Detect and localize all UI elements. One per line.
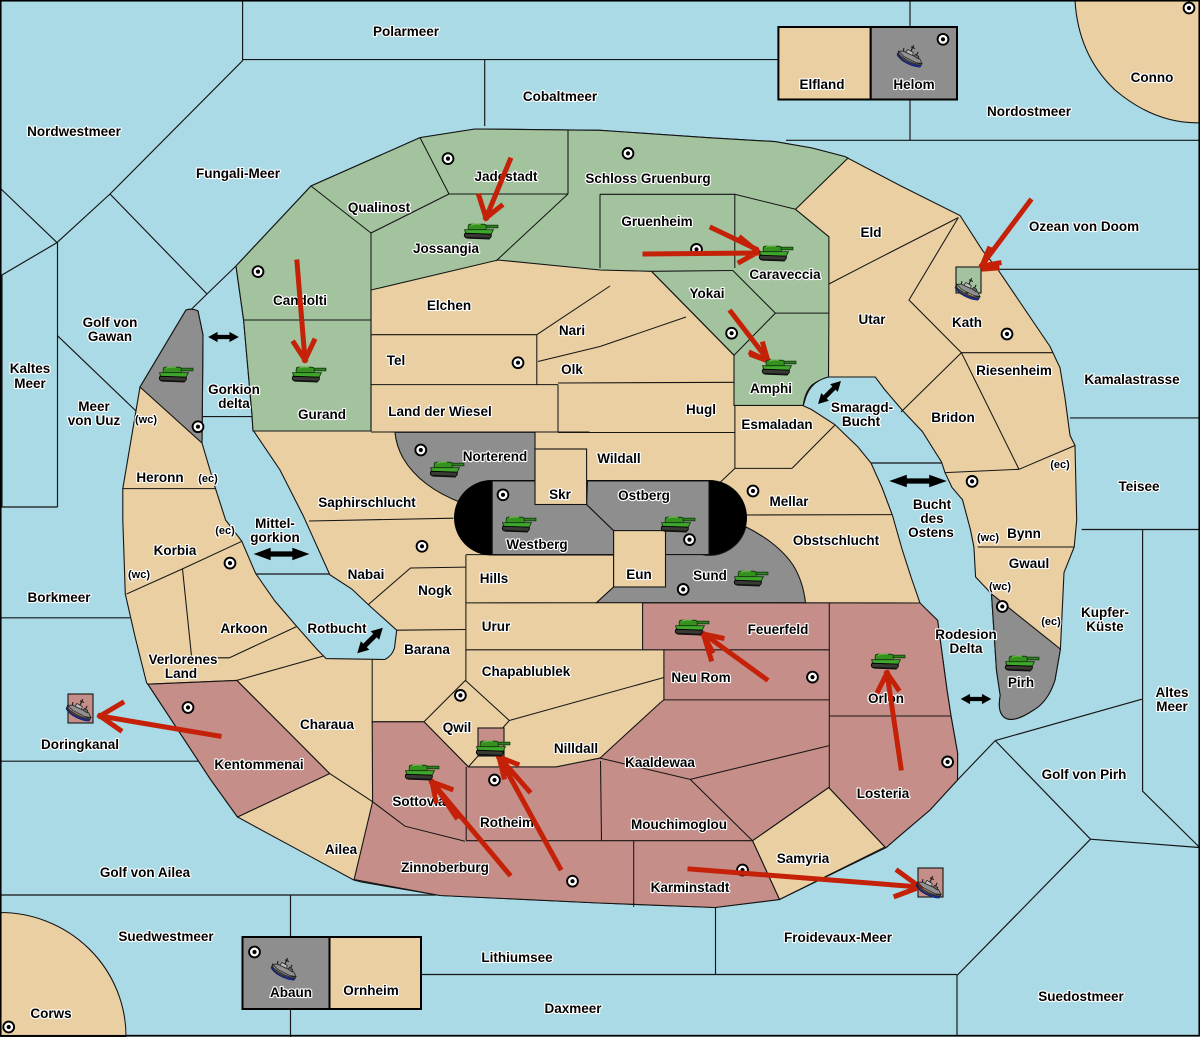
svg-text:Ostberg: Ostberg: [618, 488, 670, 503]
svg-text:Meer: Meer: [78, 399, 110, 414]
svg-text:von Uuz: von Uuz: [68, 413, 121, 428]
svg-text:(wc): (wc): [989, 581, 1011, 593]
svg-text:Zinnoberburg: Zinnoberburg: [401, 860, 489, 875]
svg-text:Amphi: Amphi: [750, 381, 792, 396]
svg-text:Suedwestmeer: Suedwestmeer: [118, 929, 214, 944]
svg-text:Golf von Pirh: Golf von Pirh: [1042, 767, 1127, 782]
svg-text:Rotheim: Rotheim: [480, 815, 534, 830]
svg-text:Qwil: Qwil: [443, 720, 472, 735]
svg-text:Saphirschlucht: Saphirschlucht: [318, 495, 416, 510]
svg-text:Feuerfeld: Feuerfeld: [748, 622, 809, 637]
svg-text:Abaun: Abaun: [270, 985, 312, 1000]
svg-text:Jossangia: Jossangia: [413, 241, 480, 256]
svg-text:Corws: Corws: [30, 1006, 71, 1021]
svg-text:gorkion: gorkion: [250, 530, 300, 545]
svg-text:Elfland: Elfland: [799, 77, 844, 92]
svg-text:Teisee: Teisee: [1118, 479, 1160, 494]
svg-text:Delta: Delta: [949, 641, 983, 656]
svg-text:Korbia: Korbia: [154, 543, 197, 558]
svg-text:Bucht: Bucht: [913, 497, 952, 512]
svg-text:Heronn: Heronn: [136, 470, 183, 485]
svg-text:Esmaladan: Esmaladan: [741, 417, 812, 432]
svg-text:Ornheim: Ornheim: [343, 983, 399, 998]
svg-text:Kamalastrasse: Kamalastrasse: [1084, 372, 1180, 387]
svg-text:Helom: Helom: [893, 77, 934, 92]
svg-text:Orlon: Orlon: [868, 691, 904, 706]
svg-text:Qualinost: Qualinost: [348, 200, 411, 215]
svg-text:Eun: Eun: [626, 567, 652, 582]
svg-text:Bridon: Bridon: [931, 410, 975, 425]
svg-text:Kentommenai: Kentommenai: [214, 757, 303, 772]
svg-text:Kupfer-: Kupfer-: [1081, 605, 1129, 620]
svg-text:Eld: Eld: [860, 225, 881, 240]
svg-text:Caraveccia: Caraveccia: [749, 267, 821, 282]
svg-text:Westberg: Westberg: [506, 537, 567, 552]
svg-text:Daxmeer: Daxmeer: [544, 1001, 602, 1016]
svg-text:Doringkanal: Doringkanal: [41, 737, 119, 752]
svg-text:Gwaul: Gwaul: [1009, 556, 1050, 571]
svg-text:Samyria: Samyria: [777, 851, 830, 866]
svg-text:Land: Land: [165, 666, 197, 681]
svg-text:(ec): (ec): [215, 525, 235, 537]
svg-text:Yokai: Yokai: [689, 286, 724, 301]
svg-text:Sund: Sund: [693, 568, 727, 583]
svg-text:Lithiumsee: Lithiumsee: [481, 950, 553, 965]
svg-text:Rotbucht: Rotbucht: [307, 621, 367, 636]
svg-text:Neu Rom: Neu Rom: [671, 670, 730, 685]
svg-text:Kaltes: Kaltes: [10, 361, 51, 376]
svg-text:Kaaldewaa: Kaaldewaa: [625, 755, 695, 770]
svg-text:Mellar: Mellar: [769, 494, 809, 509]
svg-text:Nordwestmeer: Nordwestmeer: [27, 124, 122, 139]
svg-text:Tel: Tel: [387, 353, 406, 368]
svg-text:Rodesion: Rodesion: [935, 627, 997, 642]
svg-text:Norterend: Norterend: [463, 449, 528, 464]
svg-text:Hills: Hills: [480, 571, 509, 586]
svg-text:Losteria: Losteria: [857, 786, 910, 801]
svg-text:Gorkion: Gorkion: [208, 382, 260, 397]
svg-text:Küste: Küste: [1086, 619, 1124, 634]
svg-text:Polarmeer: Polarmeer: [373, 24, 440, 39]
svg-text:Bucht: Bucht: [842, 414, 881, 429]
svg-text:(wc): (wc): [128, 569, 150, 581]
svg-text:Nordostmeer: Nordostmeer: [987, 104, 1072, 119]
svg-text:Bynn: Bynn: [1007, 526, 1041, 541]
svg-text:Charaua: Charaua: [300, 717, 355, 732]
svg-text:Obstschlucht: Obstschlucht: [793, 533, 880, 548]
svg-text:Wildall: Wildall: [597, 451, 640, 466]
svg-text:Olk: Olk: [561, 362, 583, 377]
svg-text:Mittel-: Mittel-: [255, 516, 295, 531]
svg-text:Froidevaux-Meer: Froidevaux-Meer: [784, 930, 893, 945]
svg-text:Cobaltmeer: Cobaltmeer: [523, 89, 598, 104]
svg-text:Suedostmeer: Suedostmeer: [1038, 989, 1124, 1004]
svg-text:Gruenheim: Gruenheim: [621, 214, 692, 229]
svg-text:Gurand: Gurand: [298, 407, 346, 422]
svg-text:Verlorenes: Verlorenes: [148, 652, 217, 667]
svg-text:Schloss Gruenburg: Schloss Gruenburg: [585, 171, 710, 186]
svg-text:Meer: Meer: [1156, 699, 1188, 714]
svg-text:Nogk: Nogk: [418, 583, 452, 598]
svg-text:Borkmeer: Borkmeer: [27, 590, 91, 605]
svg-text:Kath: Kath: [952, 315, 982, 330]
svg-text:Utar: Utar: [858, 312, 886, 327]
svg-text:Mouchimoglou: Mouchimoglou: [631, 817, 727, 832]
svg-text:(ec): (ec): [1041, 616, 1061, 628]
svg-text:Altes: Altes: [1155, 685, 1188, 700]
svg-text:Hugl: Hugl: [686, 402, 716, 417]
svg-text:(wc): (wc): [977, 532, 999, 544]
svg-text:Ailea: Ailea: [325, 842, 358, 857]
svg-text:des: des: [920, 511, 943, 526]
svg-text:Fungali-Meer: Fungali-Meer: [196, 166, 281, 181]
svg-text:Conno: Conno: [1131, 70, 1174, 85]
svg-text:Elchen: Elchen: [427, 298, 471, 313]
svg-text:Skr: Skr: [549, 487, 572, 502]
svg-text:Karminstadt: Karminstadt: [651, 880, 730, 895]
svg-text:Urur: Urur: [482, 619, 511, 634]
svg-text:Nilldall: Nilldall: [554, 741, 598, 756]
svg-text:Riesenheim: Riesenheim: [976, 363, 1052, 378]
svg-text:Barana: Barana: [404, 642, 450, 657]
svg-text:Nari: Nari: [559, 323, 585, 338]
svg-text:Gawan: Gawan: [88, 329, 132, 344]
svg-text:Smaragd-: Smaragd-: [831, 400, 893, 415]
svg-text:Golf von Ailea: Golf von Ailea: [100, 865, 191, 880]
svg-text:Meer: Meer: [14, 376, 46, 391]
svg-text:Golf von: Golf von: [83, 315, 138, 330]
svg-text:(ec): (ec): [1050, 459, 1070, 471]
svg-text:Land der Wiesel: Land der Wiesel: [388, 404, 491, 419]
svg-text:Pirh: Pirh: [1008, 675, 1034, 690]
svg-text:Chapablublek: Chapablublek: [482, 664, 571, 679]
svg-text:Ozean von Doom: Ozean von Doom: [1029, 219, 1139, 234]
svg-text:Ostens: Ostens: [908, 525, 954, 540]
svg-text:delta: delta: [218, 396, 250, 411]
svg-text:Arkoon: Arkoon: [220, 621, 267, 636]
svg-text:(ec): (ec): [198, 473, 218, 485]
svg-text:Nabai: Nabai: [348, 567, 385, 582]
svg-text:(wc): (wc): [135, 414, 157, 426]
